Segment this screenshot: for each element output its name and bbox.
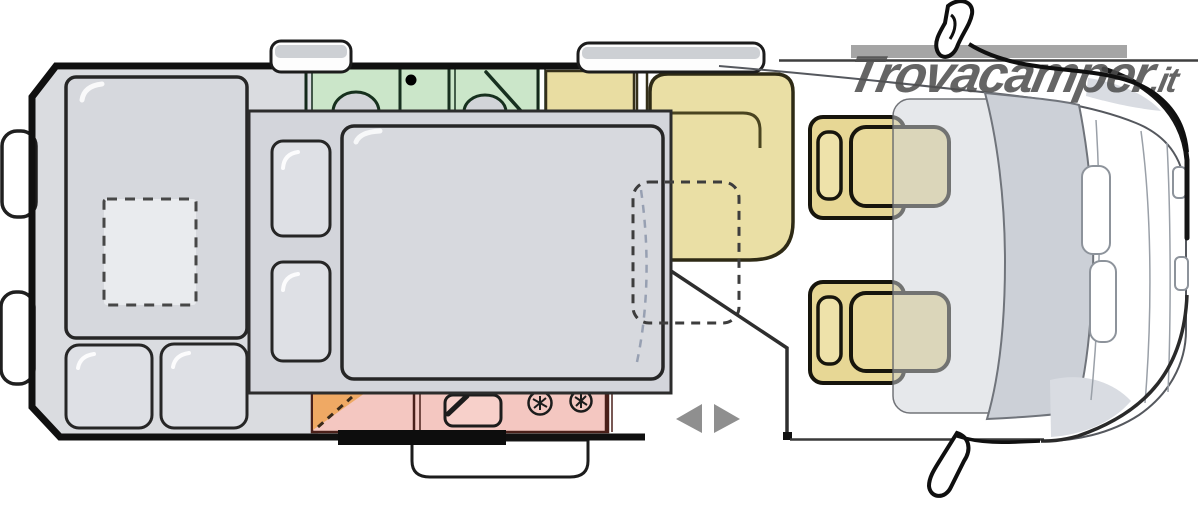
drop-down-bed-mattress	[342, 126, 663, 379]
seat-armrest	[818, 132, 841, 199]
hood-contour	[1141, 131, 1150, 403]
drop-down-bed	[249, 111, 671, 393]
seat-armrest	[818, 297, 841, 364]
skylight-shading	[582, 47, 760, 59]
hood-contour	[1167, 143, 1170, 392]
dinette-back-cushion	[546, 71, 634, 111]
headlight	[1082, 166, 1110, 254]
floorplan-canvas: Trovacamper.it	[0, 0, 1200, 507]
sill-bar	[338, 430, 506, 445]
mirror-housing	[929, 433, 968, 496]
entry-step	[412, 440, 588, 477]
watermark-text: Trovacamper.it	[842, 46, 1186, 104]
arrow-left-icon	[676, 404, 702, 433]
hood-shading	[1050, 377, 1131, 437]
pillow	[272, 262, 330, 361]
pillow	[272, 141, 330, 236]
pillow	[161, 344, 247, 428]
side-mirror-bottom-icon	[929, 433, 1040, 496]
floorplan-image: Trovacamper.it	[0, 0, 1200, 507]
grille-slot	[1175, 257, 1188, 290]
pillow	[66, 345, 152, 428]
bathroom	[306, 69, 545, 112]
skylight-shading	[275, 45, 347, 58]
door-partition-wall	[671, 271, 787, 436]
headlight	[1090, 261, 1116, 342]
kitchen	[312, 391, 612, 433]
door-hinge-dot	[406, 75, 417, 86]
grille-slot	[1173, 167, 1186, 198]
sliding-door-arrows-icon	[676, 404, 740, 433]
arrow-right-icon	[714, 404, 740, 433]
roof-vent-dashed	[104, 199, 196, 305]
